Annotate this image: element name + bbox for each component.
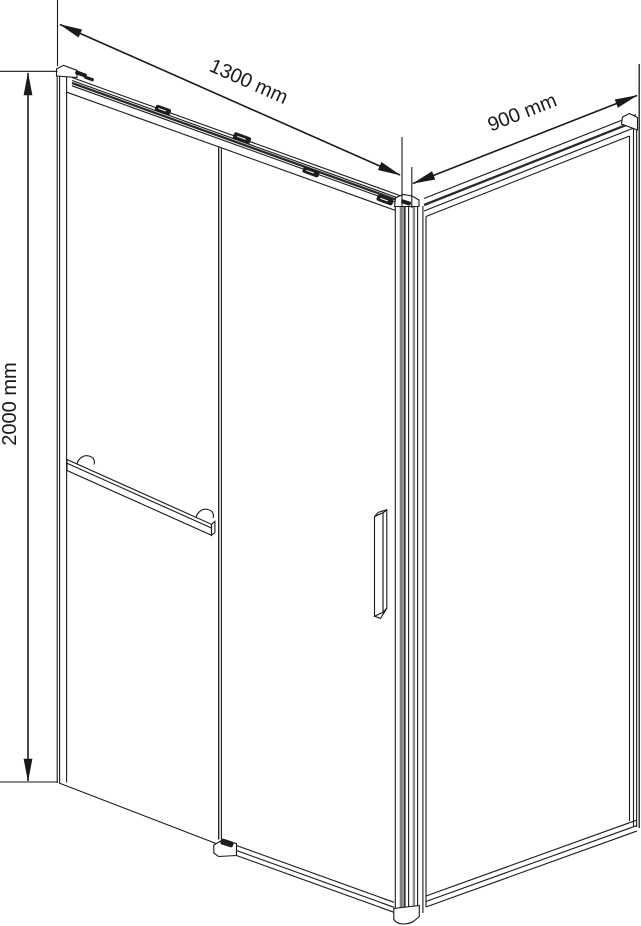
side-bottom-rail [426,820,637,907]
door-handle [375,510,387,619]
dimension-front-width: 1300 mm [60,25,402,207]
wall-profile-left [57,70,66,783]
sliding-door-edge [219,148,222,840]
side-rail-end-cap [622,114,638,131]
dimension-height: 2000 mm [0,0,58,782]
shower-enclosure-drawing: 2000 mm 1300 mm 900 mm [0,0,641,926]
front-width-label: 1300 mm [206,55,291,109]
front-panel [57,70,400,912]
corner-post [395,201,426,917]
wall-top-cap [57,65,78,77]
side-top-rail [424,115,636,217]
wall-profile-right [630,64,640,828]
top-track [67,78,400,211]
bottom-guide [214,838,237,856]
towel-bar-handle [67,456,215,536]
corner-post-bottom-cap [394,906,420,925]
height-label: 2000 mm [0,362,21,445]
side-panel [424,64,639,907]
